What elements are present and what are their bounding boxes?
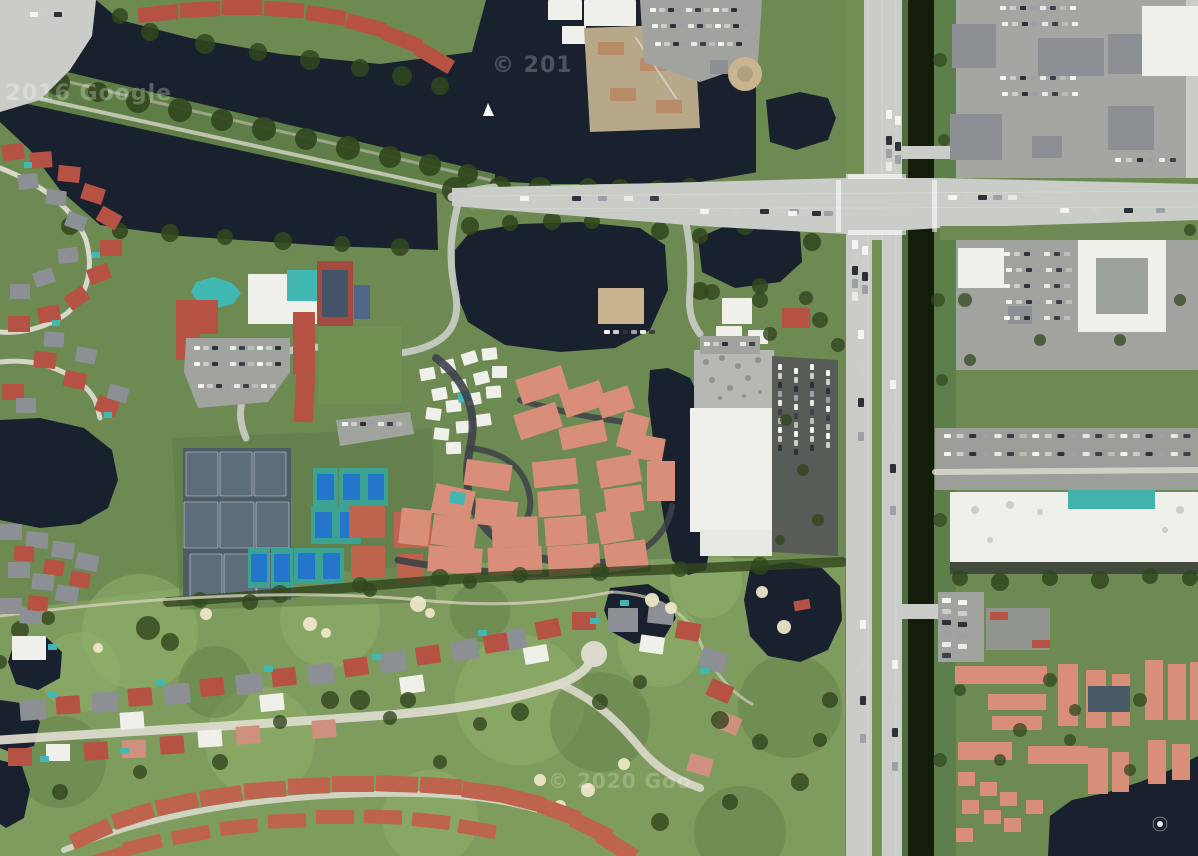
townhouses-north-arc-1 xyxy=(180,1,221,18)
se-trees-6 xyxy=(1124,764,1136,776)
golf-homes-gray-1 xyxy=(91,691,118,713)
homes-southwest-gray-2 xyxy=(51,541,75,560)
golf-trees-6 xyxy=(473,717,487,731)
treeline-blobs-5 xyxy=(591,563,609,581)
cars-parking-north-1-4 xyxy=(686,8,692,12)
golf-homes-red-2 xyxy=(199,677,225,697)
cars-store-4-5 xyxy=(826,415,830,421)
cars-road-west-2 xyxy=(572,196,581,201)
cars-club-2-1 xyxy=(203,362,209,366)
se-trees-4 xyxy=(1013,723,1027,737)
levee-trees-5 xyxy=(211,109,233,131)
club-field xyxy=(318,326,402,404)
cottages-white-14 xyxy=(475,413,492,427)
office-trees-2 xyxy=(799,291,813,305)
golf-trees-7 xyxy=(592,694,608,710)
cars-club-east-6 xyxy=(396,422,402,426)
cars-store-3-8 xyxy=(810,436,814,442)
cars-club-east-1 xyxy=(351,422,357,426)
homes-southwest-red-1 xyxy=(43,559,65,577)
se-trees-7 xyxy=(994,754,1006,766)
cars-store-3-0 xyxy=(810,364,814,370)
cars-corner-0 xyxy=(30,12,38,17)
cars-stripmall-1-15 xyxy=(1133,434,1140,438)
cars-parking-north-2-4 xyxy=(688,24,694,28)
cars-hwy-north-queue-1-0 xyxy=(886,110,892,119)
fountain xyxy=(1157,821,1163,827)
townhomes-se-11 xyxy=(1088,748,1108,794)
townhomes-golf-arc-4 xyxy=(243,781,286,800)
headland-trees-4 xyxy=(351,59,369,77)
cars-club-1-8 xyxy=(266,346,272,350)
cars-plaza-e-3-3 xyxy=(1034,284,1040,288)
tennis-courts-gray-1 xyxy=(220,452,252,496)
stripmall-trees-1 xyxy=(991,573,1009,591)
cars-stripmall-2-11 xyxy=(1083,452,1090,456)
cars-club-2-2 xyxy=(212,362,218,366)
cars-parking-north-3-8 xyxy=(727,42,733,46)
golf-homes-gray-4 xyxy=(307,662,336,685)
plaza-ne-buildings-3 xyxy=(950,114,1002,160)
cars-hwy-low-1-3 xyxy=(860,734,866,743)
cars-plaza-ne-5-3 xyxy=(1148,158,1154,162)
store-roof-vents-0 xyxy=(703,359,709,365)
sand-bunkers-5 xyxy=(321,628,331,638)
se-trees-1 xyxy=(1069,704,1081,716)
club-lodge-red-2 xyxy=(293,312,315,374)
cars-plaza-ne-3-4 xyxy=(1040,76,1046,80)
cars-plaza-e-1-3 xyxy=(1034,252,1040,256)
cars-store-4-4 xyxy=(826,406,830,412)
cars-plaza-ne-4-2 xyxy=(1022,92,1028,96)
sport-court-small xyxy=(354,285,370,319)
cars-plaza-e-3-6 xyxy=(1064,284,1070,288)
cars-road-west-1 xyxy=(546,196,555,201)
golf-homes-gray-8 xyxy=(608,608,638,632)
cars-stripmall-2-13 xyxy=(1108,452,1115,456)
cars-store-1-4 xyxy=(778,400,782,406)
cars-stripmall-1-11 xyxy=(1083,434,1090,438)
cars-hwy-mid-1-0 xyxy=(858,330,864,339)
houses-west-red-10 xyxy=(33,351,57,369)
cars-plaza-e-5-6 xyxy=(1064,316,1070,320)
cars-plaza-e-2-5 xyxy=(1056,268,1062,272)
tennis-courts-blue-2 xyxy=(368,474,384,500)
golf-homes-gray-0 xyxy=(19,699,46,721)
golf-trees-20 xyxy=(400,692,416,708)
cars-parking-north-2-5 xyxy=(697,24,703,28)
construction-material-2 xyxy=(610,88,636,101)
cars-store-2-9 xyxy=(794,449,798,455)
cars-stripmall-1-1 xyxy=(957,434,964,438)
golf-homes-red-11 xyxy=(8,748,32,766)
cars-road-east-4 xyxy=(1008,195,1017,200)
crosswalks-1 xyxy=(932,180,937,232)
cars-plaza-e-1-2 xyxy=(1024,252,1030,256)
clubhouse-pool xyxy=(287,270,318,301)
golf-homes-white-6 xyxy=(197,729,222,748)
canal-bank-trees-6 xyxy=(933,753,947,767)
store-parking-trees-2 xyxy=(812,514,824,526)
houses-west-gray-6 xyxy=(44,331,65,347)
cars-pond-building-4 xyxy=(640,330,646,334)
cars-plaza-e-2-0 xyxy=(1006,268,1012,272)
houses-west-red-11 xyxy=(2,384,24,400)
cars-stripmall-2-12 xyxy=(1095,452,1102,456)
cars-road-west-4 xyxy=(624,196,633,201)
cars-club-2-3 xyxy=(221,362,227,366)
cars-plaza-e-1-0 xyxy=(1004,252,1010,256)
headland-trees-0 xyxy=(141,23,159,41)
townhomes-se-small-2 xyxy=(1000,792,1017,806)
cars-store-1-9 xyxy=(778,445,782,451)
cars-plaza-ne-3-6 xyxy=(1060,76,1066,80)
satellite-map[interactable]: © 2016 Google© 201© 2020 Goo xyxy=(0,0,1198,856)
cottages-white-15 xyxy=(446,442,461,455)
cars-plaza-e-5-3 xyxy=(1034,316,1040,320)
houses-west-pools-1 xyxy=(92,252,100,258)
cars-plaza-ne-5-4 xyxy=(1159,158,1165,162)
cars-stripmall-2-16 xyxy=(1146,452,1153,456)
canal-bank-trees-4 xyxy=(933,513,947,527)
cars-office-0 xyxy=(704,342,710,346)
golf-trees-1 xyxy=(41,611,55,625)
townhomes-golf-arc-6 xyxy=(332,776,374,792)
golf-trees-19 xyxy=(273,715,287,729)
townhomes-se-0 xyxy=(955,666,1047,684)
construction-material-0 xyxy=(598,42,624,55)
townhomes-golf-arc-inner-5 xyxy=(364,809,402,824)
cars-pond-building-5 xyxy=(649,330,655,334)
cars-hwy-low-1-1 xyxy=(860,658,866,667)
cars-plaza-ne-1-3 xyxy=(1030,6,1036,10)
tennis-courts-blue-0 xyxy=(317,474,334,500)
verge-northeast xyxy=(756,0,848,178)
cottages-white-4 xyxy=(431,387,448,401)
office-white-0 xyxy=(722,298,752,324)
se-clubhouse-red-0 xyxy=(990,612,1008,620)
cars-store-2-5 xyxy=(794,413,798,419)
plaza-ne-white xyxy=(1142,6,1198,76)
cars-plaza-ne-2-2 xyxy=(1022,22,1028,26)
cars-parking-north-2-6 xyxy=(706,24,712,28)
cars-plaza-e-3-2 xyxy=(1024,284,1030,288)
cars-store-3-9 xyxy=(810,445,814,451)
headland-trees-5 xyxy=(392,66,412,86)
golf-trees-15 xyxy=(133,765,147,779)
golf-trees-11 xyxy=(791,773,809,791)
homes-southwest-red-3 xyxy=(27,595,48,612)
cars-stripmall-2-5 xyxy=(1007,452,1014,456)
store-roof-vents-7 xyxy=(742,394,746,398)
golf-pools-6 xyxy=(700,668,709,674)
cars-plaza-ne-3-0 xyxy=(1000,76,1006,80)
cars-store-3-4 xyxy=(810,400,814,406)
store-roof-vents-2 xyxy=(735,363,741,369)
cars-parking-north-3-6 xyxy=(709,42,715,46)
store-roof-vents-6 xyxy=(718,396,722,400)
shore-trees-17 xyxy=(752,278,768,294)
map-viewport[interactable]: © 2016 Google© 201© 2020 Goo xyxy=(0,0,1198,856)
cars-plaza-e-1-5 xyxy=(1054,252,1060,256)
market-core xyxy=(1096,258,1148,314)
cars-road-west-0 xyxy=(520,196,529,201)
townhomes-se-13 xyxy=(1148,740,1166,784)
cars-plaza-e-4-3 xyxy=(1036,300,1042,304)
cars-plaza-ne-2-1 xyxy=(1012,22,1018,26)
plaza-e-trees-5 xyxy=(1184,224,1196,236)
store-parking-trees-0 xyxy=(780,414,792,426)
houses-west-red-9 xyxy=(8,316,30,332)
houses-west-pools-3 xyxy=(104,412,112,418)
cars-hwy-low-2-1 xyxy=(892,694,898,703)
cars-store-1-2 xyxy=(778,382,782,388)
houses-west-red-0 xyxy=(1,143,25,162)
golf-homes-red-5 xyxy=(415,644,441,665)
cars-plaza-ne-1-0 xyxy=(1000,6,1006,10)
google-watermark-0: © 2016 Google xyxy=(0,81,172,106)
cars-hwy-south-queue-2-0 xyxy=(862,246,868,255)
cars-hwy-south-queue-1-0 xyxy=(852,240,858,249)
golf-homes-red-13 xyxy=(159,735,184,755)
cars-club-3-3 xyxy=(225,384,231,388)
cars-plaza-e-3-5 xyxy=(1054,284,1060,288)
golf-homes-pink-1 xyxy=(235,725,260,745)
cars-plaza-e-2-2 xyxy=(1026,268,1032,272)
cars-plaza-ne-2-7 xyxy=(1072,22,1078,26)
cars-plaza-ne-3-1 xyxy=(1010,76,1016,80)
cars-store-2-8 xyxy=(794,440,798,446)
cars-club-3-2 xyxy=(216,384,222,388)
cars-plaza-e-1-6 xyxy=(1064,252,1070,256)
townhomes-se-small-6 xyxy=(956,828,973,842)
cars-se-1-0 xyxy=(942,598,951,603)
houses-west-gray-3 xyxy=(57,247,78,264)
cars-road-east-2-3 xyxy=(1156,208,1165,213)
cars-plaza-ne-3-2 xyxy=(1020,76,1026,80)
cars-parking-north-1-9 xyxy=(731,8,737,12)
cottages-white-0 xyxy=(419,367,436,381)
office-trees-5 xyxy=(831,338,845,352)
cars-parking-north-1-6 xyxy=(704,8,710,12)
cars-office-4 xyxy=(740,342,746,346)
cars-club-2-4 xyxy=(230,362,236,366)
cars-hwy-mid-1-2 xyxy=(858,398,864,407)
condos-salmon-16 xyxy=(491,516,538,548)
levee-trees-9 xyxy=(379,146,401,168)
cars-plaza-e-4-6 xyxy=(1066,300,1072,304)
building-small-gray-0 xyxy=(710,60,728,74)
tennis-courts-gray-6 xyxy=(190,554,222,598)
se-clubhouse-red-1 xyxy=(1032,640,1050,648)
golf-homes-gray-3 xyxy=(235,673,263,696)
stripmall-trees-2 xyxy=(1042,570,1058,586)
se-trees-0 xyxy=(1043,673,1057,687)
cars-plaza-ne-2-0 xyxy=(1002,22,1008,26)
cottages-white-7 xyxy=(492,366,507,378)
tennis-courts-blue-1 xyxy=(343,474,360,500)
sand-bunkers-10 xyxy=(777,620,791,634)
verge-south-road xyxy=(940,226,1198,240)
tennis-courts-gray-3 xyxy=(184,502,218,548)
townhomes-golf-arc-5 xyxy=(288,777,331,794)
cars-hwy-low-2-3 xyxy=(892,762,898,771)
cars-plaza-ne-4-6 xyxy=(1062,92,1068,96)
pond-building xyxy=(598,288,644,324)
townhomes-se-10 xyxy=(1028,746,1088,764)
stripmall-loading xyxy=(950,562,1198,574)
condos-salmon-8 xyxy=(532,458,578,488)
cars-plaza-e-5-4 xyxy=(1044,316,1050,320)
tennis-courts-gray-2 xyxy=(254,452,286,496)
plaza-e-trees-4 xyxy=(964,354,976,366)
cars-parking-north-1-8 xyxy=(722,8,728,12)
cars-parking-north-1-0 xyxy=(650,8,656,12)
cars-stripmall-1-7 xyxy=(1032,434,1039,438)
cars-plaza-ne-5-0 xyxy=(1115,158,1121,162)
store-roof-vents-1 xyxy=(719,355,725,361)
cars-stripmall-1-8 xyxy=(1045,434,1052,438)
cottages-white-12 xyxy=(433,427,449,441)
golf-trees-26 xyxy=(822,692,838,708)
cars-stripmall-2-8 xyxy=(1045,452,1052,456)
townhomes-se-6 xyxy=(1145,660,1163,720)
shore-trees-24 xyxy=(334,236,350,252)
cars-parking-north-1-5 xyxy=(695,8,701,12)
google-watermark-2: © 2020 Goo xyxy=(548,769,692,793)
cars-plaza-e-2-3 xyxy=(1036,268,1042,272)
golf-trees-9 xyxy=(711,711,729,729)
store-roof-vents-3 xyxy=(709,377,715,383)
store-parking-trees-3 xyxy=(775,535,785,545)
cars-club-east-0 xyxy=(342,422,348,426)
crosswalks-2 xyxy=(848,174,906,179)
cars-se-1-5 xyxy=(942,653,951,658)
shore-trees-21 xyxy=(161,224,179,242)
townhomes-se-7 xyxy=(1168,664,1186,720)
se-trees-2 xyxy=(1133,693,1147,707)
cars-hwy-south-queue-2-1 xyxy=(862,259,868,268)
shore-trees-23 xyxy=(274,232,292,250)
cars-hwy-south-queue-1-3 xyxy=(852,279,858,288)
cars-road-east-2-1 xyxy=(1092,208,1101,213)
shore-trees-10 xyxy=(543,212,561,230)
cars-pond-building-0 xyxy=(604,330,610,334)
cars-plaza-ne-2-4 xyxy=(1042,22,1048,26)
cars-stripmall-2-4 xyxy=(994,452,1001,456)
cars-plaza-ne-3-5 xyxy=(1050,76,1056,80)
cars-pond-building-2 xyxy=(622,330,628,334)
cars-road-west-2-0 xyxy=(700,209,709,214)
golf-pools-5 xyxy=(590,618,599,624)
cars-parking-north-3-9 xyxy=(736,42,742,46)
cars-plaza-ne-5-1 xyxy=(1126,158,1132,162)
map-scene: © 2016 Google© 201© 2020 Goo xyxy=(0,0,1198,856)
golf-trees-21 xyxy=(433,755,447,769)
sand-bunkers-1 xyxy=(425,608,435,618)
cars-club-1-6 xyxy=(248,346,254,350)
golf-trees-4 xyxy=(463,575,477,589)
cars-parking-north-2-2 xyxy=(670,24,676,28)
cars-parking-north-2-8 xyxy=(724,24,730,28)
cars-stripmall-1-12 xyxy=(1095,434,1102,438)
cars-hwy-north-queue-1-1 xyxy=(886,123,892,132)
levee-trees-7 xyxy=(295,128,317,150)
cars-plaza-e-3-4 xyxy=(1044,284,1050,288)
golf-trees-10 xyxy=(752,734,768,750)
golf-pools-7 xyxy=(40,756,49,762)
canal-bank-west xyxy=(902,0,908,856)
townhomes-se-small-0 xyxy=(958,772,975,786)
cars-road-east-2-0 xyxy=(1060,208,1069,213)
cars-stripmall-2-2 xyxy=(969,452,976,456)
cars-stripmall-2-18 xyxy=(1171,452,1178,456)
cars-store-4-7 xyxy=(826,433,830,439)
houses-west-gray-9 xyxy=(16,398,36,413)
houses-west-red-5 xyxy=(100,240,122,256)
cars-club-3-5 xyxy=(243,384,249,388)
cars-turn-queue-1 xyxy=(800,211,809,216)
sand-bunkers-2 xyxy=(645,593,659,607)
cars-se-2-2 xyxy=(958,622,967,627)
cars-plaza-e-4-1 xyxy=(1016,300,1022,304)
cars-road-east-2 xyxy=(978,195,987,200)
townhomes-se-small-4 xyxy=(984,810,1001,824)
cars-club-east-4 xyxy=(378,422,384,426)
townhomes-golf-arc-inner-3 xyxy=(268,813,306,828)
homes-southwest-gray-5 xyxy=(31,573,55,591)
cars-store-3-7 xyxy=(810,427,814,433)
plaza-e-trees-1 xyxy=(1034,334,1046,346)
plaza-ne-buildings-1 xyxy=(1038,38,1104,76)
cars-plaza-ne-1-2 xyxy=(1020,6,1026,10)
levee-trees-6 xyxy=(252,117,276,141)
cars-plaza-e-5-5 xyxy=(1054,316,1060,320)
cars-stripmall-1-6 xyxy=(1020,434,1027,438)
townhomes-golf-arc-inner-4 xyxy=(316,810,354,824)
cars-turn-queue-3 xyxy=(824,211,833,216)
cars-parking-north-2-10 xyxy=(742,24,748,28)
golf-trees-14 xyxy=(212,754,228,770)
cars-hwy-low-1-0 xyxy=(860,620,866,629)
stripmall-roof-units-2 xyxy=(1037,509,1043,515)
cars-pond-building-3 xyxy=(631,330,637,334)
cars-store-3-3 xyxy=(810,391,814,397)
cars-parking-north-2-3 xyxy=(679,24,685,28)
cars-se-1-2 xyxy=(942,620,951,625)
tennis-courts-blue-7 xyxy=(298,553,315,579)
cars-stripmall-2-15 xyxy=(1133,452,1140,456)
tennis-courts-blue-8 xyxy=(323,553,340,579)
cars-store-1-7 xyxy=(778,427,782,433)
cars-stripmall-2-17 xyxy=(1158,452,1165,456)
golf-homes-gray-2 xyxy=(163,683,191,706)
townhomes-golf-arc-8 xyxy=(419,777,462,796)
cars-stripmall-1-5 xyxy=(1007,434,1014,438)
club-lodge-red-0 xyxy=(176,300,218,334)
tennis-courts-blue-5 xyxy=(251,554,267,582)
golf-trees-24 xyxy=(350,690,370,710)
cars-club-1-9 xyxy=(275,346,281,350)
cars-parking-north-3-5 xyxy=(700,42,706,46)
sand-bunkers-6 xyxy=(534,774,546,786)
condos-salmon-23 xyxy=(398,508,432,547)
cars-store-4-6 xyxy=(826,424,830,430)
cars-store-2-1 xyxy=(794,377,798,383)
shore-trees-16 xyxy=(803,233,821,251)
cars-hwy-low-2-2 xyxy=(892,728,898,737)
cars-stripmall-2-19 xyxy=(1183,452,1190,456)
